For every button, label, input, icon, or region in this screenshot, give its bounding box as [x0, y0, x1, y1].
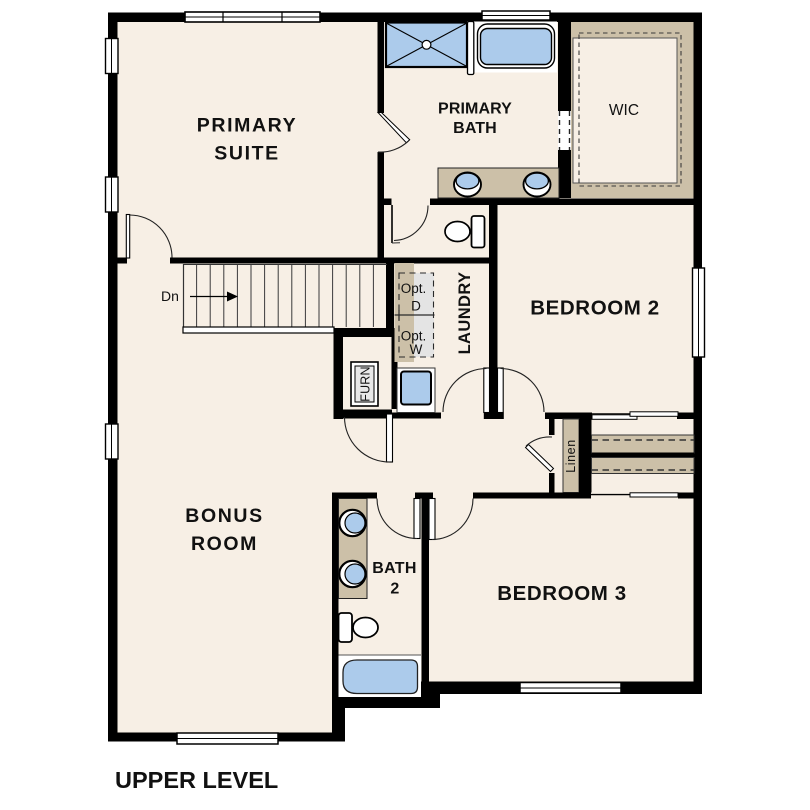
svg-text:D: D: [411, 299, 421, 314]
svg-text:WIC: WIC: [609, 102, 639, 119]
svg-text:LAUNDRY: LAUNDRY: [456, 272, 474, 355]
svg-text:Opt.: Opt.: [401, 281, 427, 296]
svg-text:BEDROOM 2: BEDROOM 2: [530, 297, 660, 320]
svg-text:BEDROOM 3: BEDROOM 3: [497, 582, 627, 605]
svg-text:SUITE: SUITE: [214, 143, 279, 165]
svg-text:UPPER LEVEL: UPPER LEVEL: [115, 767, 278, 793]
svg-text:BATH: BATH: [372, 560, 416, 577]
svg-text:FURN: FURN: [359, 366, 373, 402]
svg-text:Linen: Linen: [564, 439, 578, 473]
svg-text:BONUS: BONUS: [185, 505, 263, 527]
svg-text:Dn: Dn: [161, 288, 179, 304]
svg-text:ROOM: ROOM: [191, 533, 258, 555]
svg-text:PRIMARY: PRIMARY: [438, 100, 512, 117]
svg-text:2: 2: [390, 581, 399, 598]
svg-text:BATH: BATH: [453, 120, 497, 137]
svg-text:W: W: [410, 342, 423, 357]
svg-text:PRIMARY: PRIMARY: [197, 115, 297, 137]
